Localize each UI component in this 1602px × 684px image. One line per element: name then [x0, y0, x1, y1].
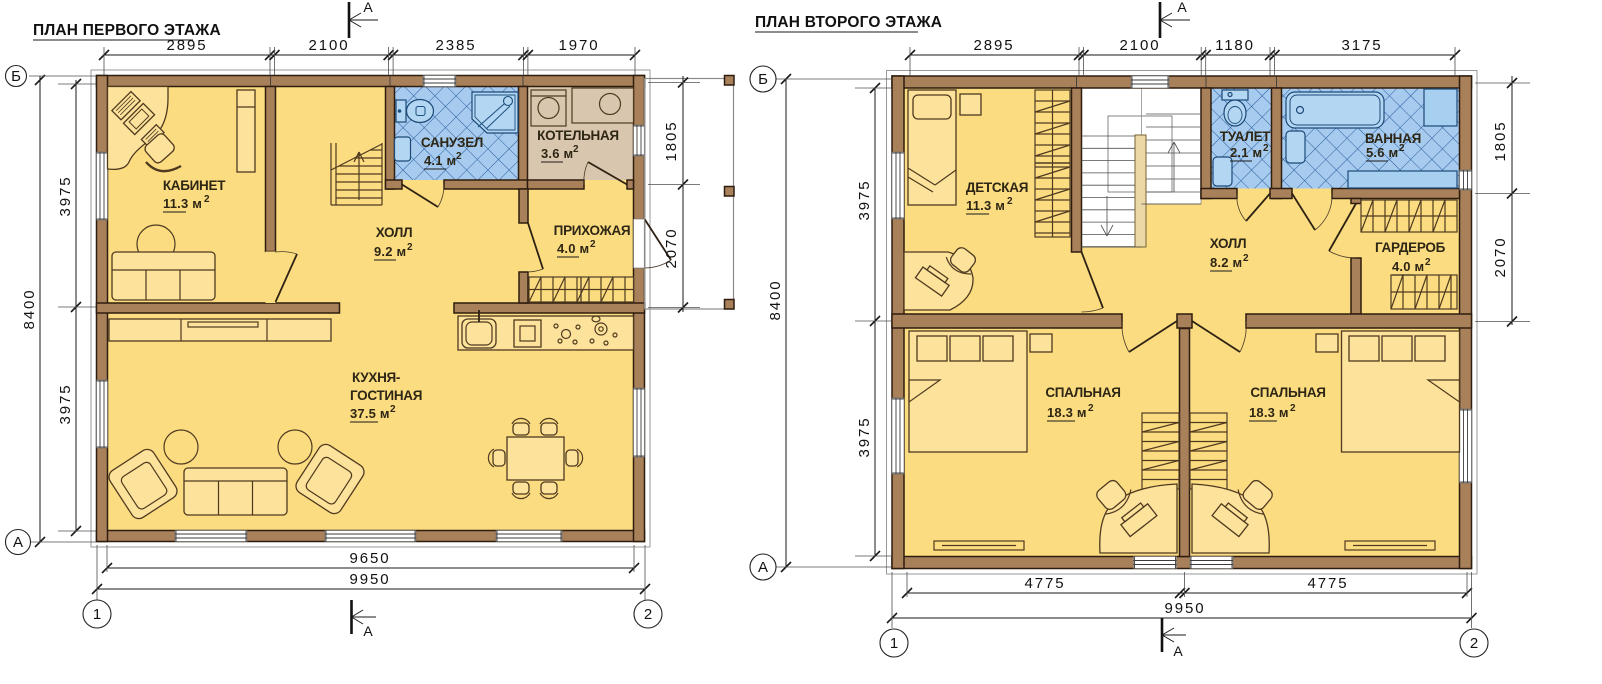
- svg-text:2: 2: [407, 242, 413, 253]
- svg-text:2: 2: [1088, 403, 1094, 414]
- svg-text:8.2 м: 8.2 м: [1210, 255, 1242, 270]
- svg-text:СПАЛЬНАЯ: СПАЛЬНАЯ: [1250, 385, 1325, 400]
- svg-text:Б: Б: [11, 68, 21, 85]
- svg-text:2: 2: [644, 606, 652, 623]
- svg-text:А: А: [1177, 0, 1187, 15]
- svg-text:2.1 м: 2.1 м: [1230, 145, 1262, 160]
- svg-text:ГАРДЕРОБ: ГАРДЕРОБ: [1375, 240, 1446, 255]
- svg-text:КУХНЯ-: КУХНЯ-: [352, 370, 400, 385]
- svg-text:3975: 3975: [57, 176, 74, 217]
- svg-text:А: А: [13, 534, 23, 551]
- svg-text:2: 2: [1007, 196, 1013, 207]
- svg-text:2070: 2070: [1492, 237, 1509, 278]
- svg-text:2: 2: [1470, 635, 1478, 652]
- svg-text:11.3 м: 11.3 м: [163, 196, 202, 211]
- svg-text:3175: 3175: [1342, 37, 1383, 54]
- svg-text:2: 2: [1425, 257, 1431, 268]
- svg-text:1180: 1180: [1215, 37, 1255, 54]
- svg-text:ГОСТИНАЯ: ГОСТИНАЯ: [350, 388, 422, 403]
- svg-text:ВАННАЯ: ВАННАЯ: [1365, 131, 1421, 146]
- svg-text:2100: 2100: [1120, 37, 1161, 54]
- svg-text:18.3 м: 18.3 м: [1249, 405, 1289, 420]
- svg-text:1: 1: [93, 606, 101, 623]
- svg-text:ДЕТСКАЯ: ДЕТСКАЯ: [966, 180, 1028, 195]
- svg-text:1805: 1805: [663, 121, 680, 162]
- svg-text:4775: 4775: [1308, 575, 1349, 592]
- svg-text:2: 2: [1243, 253, 1249, 264]
- svg-text:КАБИНЕТ: КАБИНЕТ: [163, 178, 226, 193]
- svg-text:4.0 м: 4.0 м: [1392, 259, 1424, 274]
- svg-text:САНУЗЕЛ: САНУЗЕЛ: [421, 135, 483, 150]
- svg-text:ТУАЛЕТ: ТУАЛЕТ: [1220, 129, 1272, 144]
- svg-text:2385: 2385: [436, 37, 477, 54]
- svg-text:Б: Б: [758, 71, 768, 88]
- svg-text:А: А: [758, 559, 768, 576]
- svg-text:9.2 м: 9.2 м: [374, 244, 406, 259]
- svg-text:ПРИХОЖАЯ: ПРИХОЖАЯ: [554, 223, 631, 238]
- svg-text:11.3 м: 11.3 м: [966, 198, 1005, 213]
- svg-text:2: 2: [390, 404, 396, 415]
- svg-text:СПАЛЬНАЯ: СПАЛЬНАЯ: [1045, 385, 1120, 400]
- svg-text:КОТЕЛЬНАЯ: КОТЕЛЬНАЯ: [537, 128, 619, 143]
- svg-text:9650: 9650: [350, 550, 391, 567]
- svg-text:А: А: [1173, 643, 1183, 659]
- svg-text:ХОЛЛ: ХОЛЛ: [1210, 236, 1247, 251]
- svg-text:4775: 4775: [1025, 575, 1066, 592]
- svg-text:2100: 2100: [309, 37, 350, 54]
- svg-text:ПЛАН ВТОРОГО ЭТАЖА: ПЛАН ВТОРОГО ЭТАЖА: [755, 14, 942, 31]
- svg-text:9950: 9950: [350, 571, 391, 588]
- svg-text:2070: 2070: [663, 228, 680, 269]
- svg-text:3975: 3975: [856, 417, 873, 458]
- svg-text:9950: 9950: [1165, 600, 1206, 617]
- svg-text:4.1 м: 4.1 м: [424, 153, 456, 168]
- svg-text:4.0 м: 4.0 м: [557, 241, 589, 256]
- svg-text:1: 1: [890, 635, 898, 652]
- svg-text:3975: 3975: [856, 180, 873, 221]
- svg-text:5.6 м: 5.6 м: [1366, 145, 1398, 160]
- svg-text:3.6 м: 3.6 м: [541, 146, 573, 161]
- svg-text:8400: 8400: [767, 280, 784, 321]
- svg-text:2: 2: [1263, 143, 1269, 154]
- svg-text:18.3 м: 18.3 м: [1047, 405, 1087, 420]
- svg-text:2: 2: [456, 151, 462, 162]
- svg-text:2: 2: [1399, 143, 1405, 154]
- svg-text:2895: 2895: [974, 37, 1015, 54]
- svg-text:37.5 м: 37.5 м: [350, 406, 390, 421]
- svg-text:2: 2: [1290, 403, 1296, 414]
- svg-text:А: А: [363, 0, 373, 15]
- svg-text:2: 2: [204, 194, 210, 205]
- svg-text:8400: 8400: [21, 289, 38, 330]
- svg-text:1805: 1805: [1492, 121, 1509, 162]
- svg-text:3975: 3975: [57, 384, 74, 425]
- svg-text:2: 2: [590, 239, 596, 250]
- svg-text:ХОЛЛ: ХОЛЛ: [376, 225, 413, 240]
- svg-text:1970: 1970: [559, 37, 600, 54]
- svg-text:А: А: [363, 623, 373, 639]
- svg-text:2: 2: [573, 144, 579, 155]
- svg-text:2895: 2895: [167, 37, 208, 54]
